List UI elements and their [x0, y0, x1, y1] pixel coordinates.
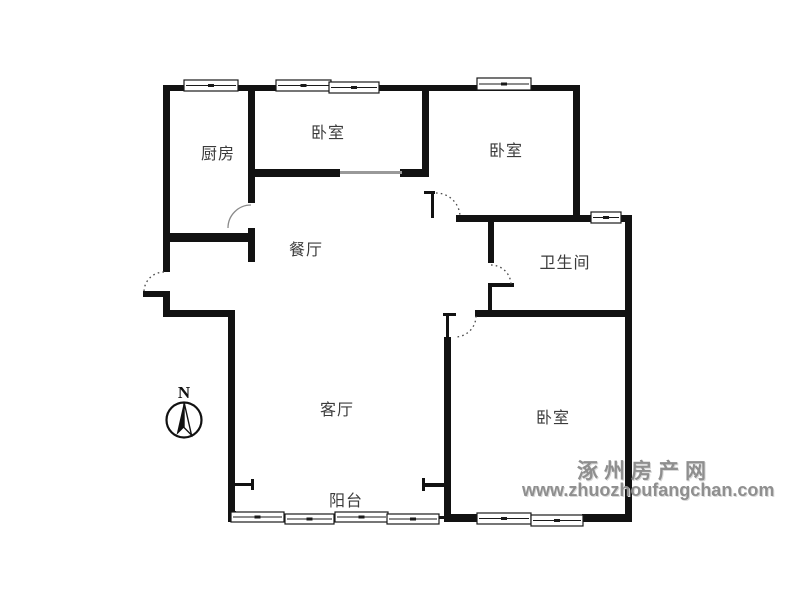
window-symbol: [531, 515, 583, 526]
wall-segment: [456, 215, 593, 222]
wall-segment: [475, 310, 632, 317]
watermark-url: www.zhuozhoufangchan.com: [522, 480, 774, 501]
wall-segment: [163, 233, 255, 242]
room-label-bedroom-right: 卧室: [489, 137, 523, 161]
room-label-living: 客厅: [320, 396, 354, 420]
wall-segment: [248, 228, 255, 262]
room-label-kitchen: 厨房: [201, 140, 235, 164]
door-arc: [144, 272, 164, 292]
window-symbol: [276, 80, 331, 91]
room-label-bedroom-bottom: 卧室: [536, 404, 570, 428]
wall-segment: [446, 316, 449, 337]
window-symbol: [335, 512, 388, 522]
compass: [161, 397, 207, 443]
room-label-bedroom-top: 卧室: [311, 119, 345, 143]
wall-segment: [423, 483, 446, 487]
wall-segment: [163, 291, 170, 313]
wall-segment: [422, 85, 429, 177]
window-symbol: [387, 514, 439, 524]
wall-segment: [573, 85, 580, 222]
room-label-bathroom: 卫生间: [539, 249, 590, 273]
door-arc: [436, 193, 460, 217]
wall-segment: [422, 478, 425, 491]
wall-segment: [444, 514, 480, 522]
window-symbol: [184, 80, 238, 91]
door-arc: [455, 316, 476, 337]
wall-segment: [444, 337, 451, 518]
floor-plan: 厨房 卧室 卧室 餐厅 卫生间 客厅 卧室 阳台 N 涿州房产网 www.zhu…: [0, 0, 800, 600]
window-symbol: [477, 513, 531, 524]
room-label-balcony: 阳台: [329, 487, 363, 511]
room-label-dining: 餐厅: [289, 236, 323, 260]
compass-icon: [161, 397, 207, 443]
wall-segment: [163, 310, 235, 317]
window-symbol: [477, 78, 531, 90]
window-symbol: [231, 512, 284, 522]
wall-segment: [443, 313, 456, 316]
wall-segment: [248, 85, 255, 203]
opening-line: [340, 171, 402, 174]
wall-segment: [248, 169, 340, 177]
wall-segment: [488, 218, 494, 263]
window-symbol: [329, 82, 379, 93]
wall-segment: [163, 85, 170, 272]
door-arc: [228, 205, 251, 228]
floor-plan-drawing: [0, 0, 800, 600]
door-arc: [491, 265, 511, 285]
wall-segment: [251, 479, 254, 490]
wall-segment: [488, 283, 492, 313]
wall-segment: [582, 514, 632, 522]
wall-segment: [431, 191, 434, 218]
window-symbol: [285, 514, 334, 524]
wall-segment: [228, 310, 235, 518]
window-symbol: [591, 212, 621, 223]
